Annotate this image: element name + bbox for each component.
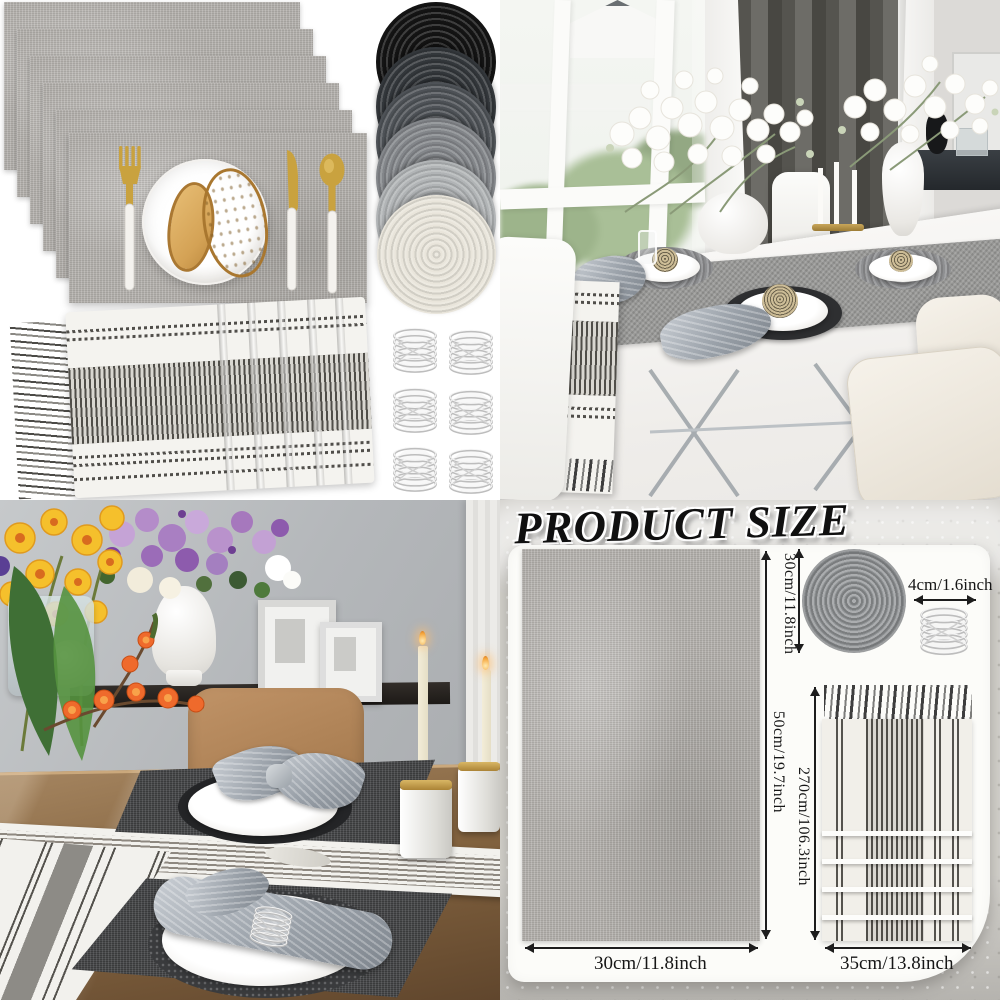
runner-diagram-fringe: [824, 685, 972, 721]
runner-width-arrow: [825, 947, 971, 949]
patterned-bowl: [889, 250, 913, 272]
quadrant-dining-room-photo: [500, 0, 1000, 500]
runner-fabric: [65, 297, 374, 498]
folded-table-runner: [9, 297, 374, 500]
orange-flower-sprig: [34, 612, 214, 737]
runner-fold-line: [822, 859, 972, 864]
runner-fold-line: [822, 887, 972, 892]
napkin-ring-icon: [916, 603, 972, 659]
quadrant-flatlay-photo: [0, 0, 500, 500]
napkin-ring-icon: [389, 324, 441, 377]
candle-holder-gold-rim: [458, 762, 500, 771]
placemat-width-arrow: [525, 947, 758, 949]
runner-diagram: [822, 719, 972, 941]
runner-stripe-group: [952, 719, 962, 941]
quadrant-size-chart: PRODUCT SIZE 50cm/19.7inch 30cm/11.8inch…: [500, 500, 1000, 1000]
runner-stripe-group: [934, 719, 942, 941]
coaster-diameter-arrow: [798, 549, 800, 653]
picture-frame-photo: [275, 619, 305, 663]
runner-fold-line: [822, 831, 972, 836]
placemat-height-label: 50cm/19.7inch: [769, 711, 787, 813]
white-orchids: [830, 52, 1000, 172]
brass-candle-holder: [812, 224, 864, 231]
gold-knife: [281, 150, 301, 292]
placemat-height-arrow: [765, 551, 767, 939]
white-chair: [500, 236, 577, 500]
runner-stripe-group: [836, 719, 846, 941]
runner-fold-line: [822, 915, 972, 920]
quadrant-table-scene-photo: [0, 500, 500, 1000]
size-panel-card: 50cm/19.7inch 30cm/11.8inch 30cm/11.8inc…: [508, 545, 990, 982]
napkin-ring-icon: [445, 326, 497, 379]
candle-holder: [400, 784, 452, 858]
coaster-diameter-label: 30cm/11.8inch: [780, 553, 798, 654]
candle-holder: [458, 766, 500, 832]
drinking-glass: [638, 230, 657, 266]
white-orchids: [600, 62, 815, 217]
runner-length-arrow: [814, 687, 816, 940]
runner-length-label: 270cm/106.3inch: [794, 767, 812, 886]
round-placemat-cream: [377, 195, 496, 314]
runner-stripe-band: [866, 719, 924, 941]
gold-spoon: [317, 153, 347, 295]
placemat-diagram: [522, 549, 760, 941]
cream-chair: [844, 344, 1000, 500]
taper-candle: [852, 170, 857, 226]
candle-holder-gold-rim: [400, 780, 452, 790]
runner-width-label: 35cm/13.8inch: [840, 953, 953, 975]
napkin-ring-icon: [445, 386, 497, 439]
napkin-ring-width-arrow: [914, 599, 976, 601]
napkin-knot: [266, 764, 292, 788]
napkin-ring-icon: [389, 443, 441, 496]
gold-fork: [116, 146, 142, 292]
taper-candle: [818, 168, 823, 226]
napkin-ring-icon: [244, 900, 298, 954]
candle-flame: [482, 656, 489, 670]
runner-stripe-thin: [74, 463, 374, 482]
placemat-width-label: 30cm/11.8inch: [594, 953, 707, 975]
candle-flame: [419, 631, 426, 645]
product-collage: PRODUCT SIZE 50cm/19.7inch 30cm/11.8inch…: [0, 0, 1000, 1000]
napkin-ring-icon: [445, 445, 497, 498]
picture-frame-photo: [334, 637, 356, 671]
coaster-diagram: [802, 549, 906, 653]
napkin-ring-icon: [389, 384, 441, 437]
napkin-ring-width-label: 4cm/1.6inch: [908, 575, 993, 595]
